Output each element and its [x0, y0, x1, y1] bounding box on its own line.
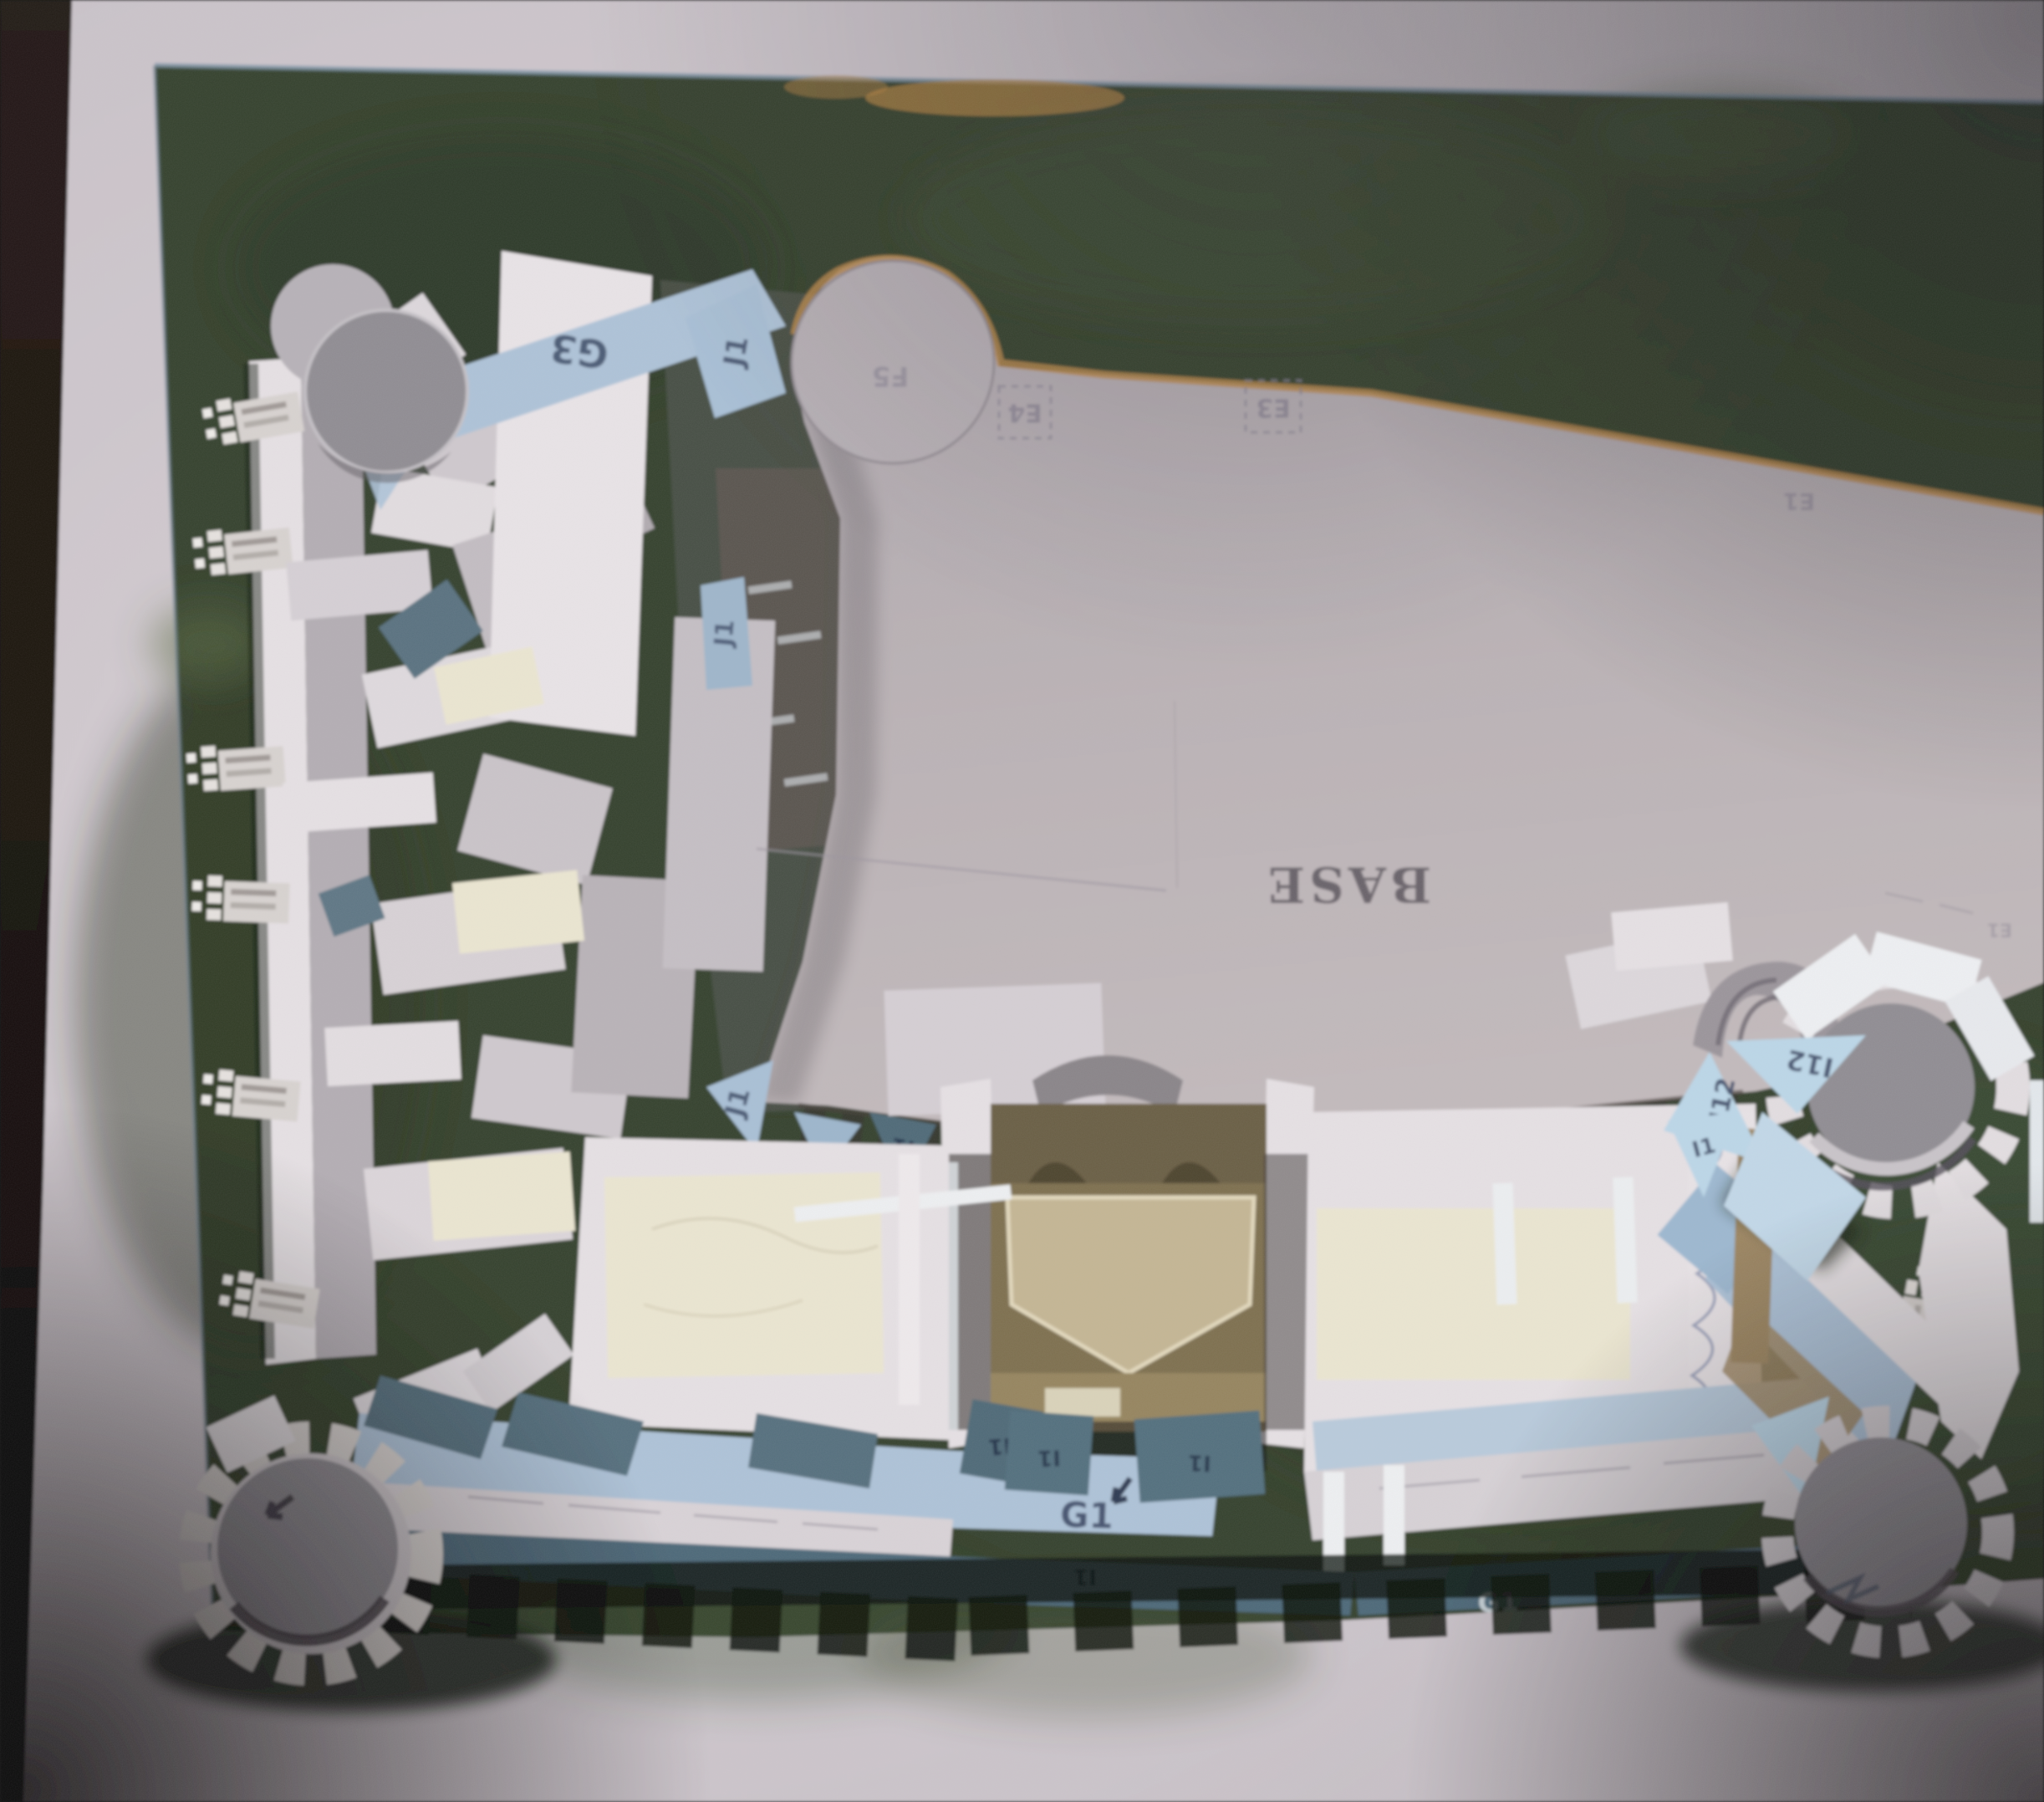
photo-grain — [0, 0, 2044, 1802]
castle-model-photo: G3 J1 J1 F5 E4 E3 E1 E1 — [0, 0, 2044, 1802]
